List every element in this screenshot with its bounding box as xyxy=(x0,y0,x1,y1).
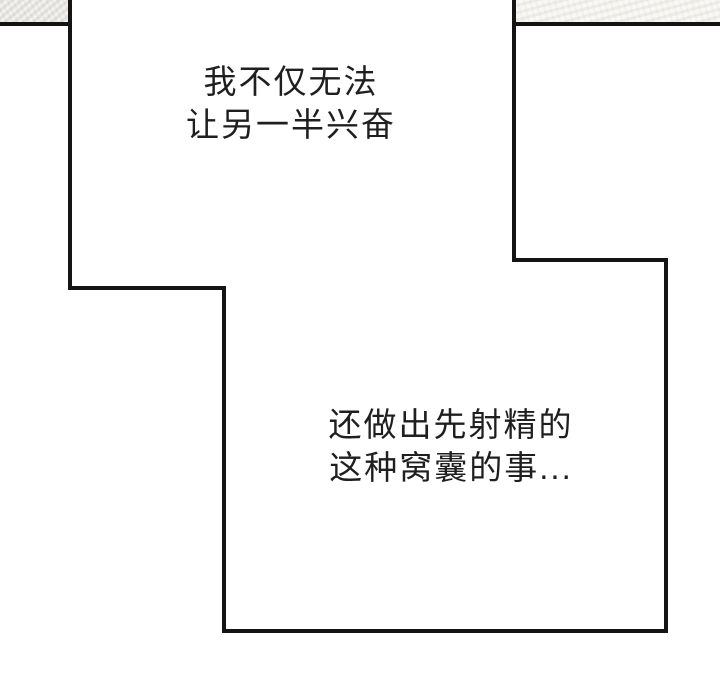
panel-border-middle-vertical xyxy=(222,286,226,633)
adjacent-panel-fragment-left xyxy=(0,0,68,22)
dialogue-2-line-1: 还做出先射精的 xyxy=(228,403,674,446)
dialogue-2-line-2: 这种窝囊的事... xyxy=(228,446,674,489)
comic-page: 我不仅无法 让另一半兴奋 还做出先射精的 这种窝囊的事... xyxy=(0,0,720,700)
dialogue-1-line-1: 我不仅无法 xyxy=(68,60,514,103)
adjacent-panel-fragment-right xyxy=(516,0,720,22)
dialogue-1-line-2: 让另一半兴奋 xyxy=(68,103,514,146)
panel-border-right-step-horizontal xyxy=(512,258,668,262)
panel-border-left-step-horizontal xyxy=(68,286,226,290)
dialogue-text-1: 我不仅无法 让另一半兴奋 xyxy=(68,60,514,146)
panel-border-top-left-horizontal xyxy=(0,22,72,26)
panel-border-bottom-horizontal xyxy=(222,629,668,633)
dialogue-text-2: 还做出先射精的 这种窝囊的事... xyxy=(228,403,674,489)
panel-border-top-right-horizontal xyxy=(512,22,720,26)
